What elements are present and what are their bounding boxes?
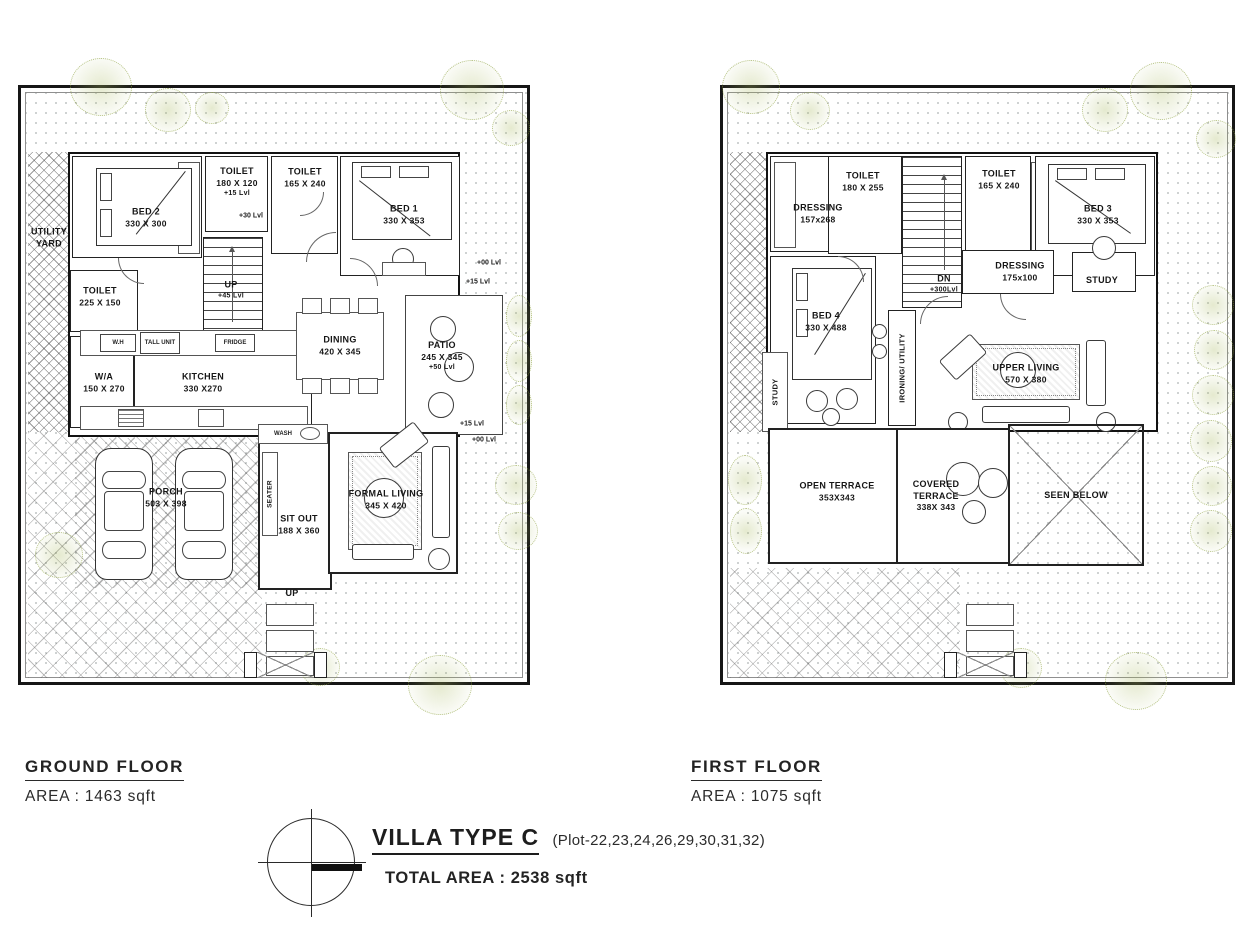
stairs-dn-label: DN +300Lvl [930, 274, 958, 295]
dining-chair [358, 378, 378, 394]
stepping-stone [266, 604, 314, 626]
car-icon [175, 448, 233, 580]
tree-icon [790, 92, 830, 130]
room-name: KITCHEN [182, 372, 224, 382]
plot-numbers: (Plot-22,23,24,26,29,30,31,32) [553, 832, 765, 849]
desk [382, 262, 426, 276]
wash-basin-icon [300, 427, 320, 440]
tree-icon [1082, 88, 1128, 132]
formal-living-label: FORMAL LIVING 345 X 420 [349, 489, 424, 512]
gate-post [944, 652, 957, 678]
room-name: TOILET [83, 286, 117, 296]
room-dims: 180 X 255 [842, 182, 883, 193]
ironing-utility-label: IRONING/ UTILITY [898, 333, 907, 402]
level-00-label: +00 Lvl [472, 437, 496, 444]
driveway-hatch [730, 568, 960, 678]
tree-icon [70, 58, 132, 116]
toilet-c-label: TOILET 225 X 150 [79, 286, 120, 309]
wash-label: WASH [274, 431, 292, 437]
room-dims: 330 X 353 [1077, 215, 1118, 226]
sofa [432, 446, 450, 538]
bench-seat [982, 406, 1070, 423]
room-name: OPEN TERRACE [799, 481, 874, 491]
room-name: TOILET [288, 167, 322, 177]
room-dims: 157x268 [793, 214, 842, 225]
dining-chair [330, 378, 350, 394]
room-dims: 165 X 240 [978, 180, 1019, 191]
room-name: UPPER LIVING [992, 363, 1059, 373]
fridge-label: FRIDGE [224, 340, 247, 347]
porch-label: PORCH 503 X 398 [145, 487, 186, 510]
level-15-label: +15 Lvl [466, 279, 490, 286]
car-windshield [102, 471, 146, 489]
stairs-arrow-head [941, 174, 947, 180]
tree-icon [1190, 510, 1232, 552]
tree-icon [492, 110, 530, 146]
tub-chair [836, 388, 858, 410]
tree-icon [1105, 652, 1167, 710]
pillow [100, 209, 112, 237]
room-dims: 150 X 270 [83, 383, 124, 394]
upper-living-label: UPPER LIVING 570 X 380 [992, 363, 1059, 386]
tree-icon [1196, 120, 1236, 158]
gate-swing [257, 652, 314, 678]
pillow [796, 273, 808, 301]
room-dims: 338X 343 [913, 502, 960, 513]
room-dims: 180 X 120 [216, 178, 257, 189]
terrace-chair [962, 500, 986, 524]
room-name: BED 1 [390, 204, 418, 214]
water-heater-box: W.H [100, 334, 136, 352]
patio-chair [428, 392, 454, 418]
gate-post [244, 652, 257, 678]
bed3-label: BED 3 330 X 353 [1077, 204, 1118, 227]
tall-unit-label: TALL UNIT [145, 340, 175, 347]
patio-chair [430, 316, 456, 342]
level-00-label: +00 Lvl [477, 260, 501, 267]
sofa [1086, 340, 1106, 406]
room-name: TOILET [220, 166, 254, 176]
toilet-b-label: TOILET 165 X 240 [284, 167, 325, 190]
open-terrace-label: OPEN TERRACE 353X343 [799, 481, 874, 504]
tree-icon [506, 385, 532, 425]
room-name: BED 4 [812, 311, 840, 321]
study-b-label: STUDY [771, 379, 780, 406]
terrace-chair [978, 468, 1008, 498]
room-name: UTILITY YARD [31, 226, 67, 248]
pillow [399, 166, 429, 178]
fridge-box: FRIDGE [215, 334, 255, 352]
pillow [100, 173, 112, 201]
tree-icon [495, 465, 537, 505]
room-dims: 420 X 345 [319, 346, 360, 357]
villa-title: VILLA TYPE C [372, 824, 539, 855]
level-15-label: +15 Lvl [460, 421, 484, 428]
gate-post [1014, 652, 1027, 678]
tree-icon [506, 295, 532, 337]
tree-icon [1192, 285, 1234, 325]
bed1-furniture [352, 162, 452, 240]
car-roof [184, 491, 224, 531]
tree-icon [440, 60, 504, 120]
stairs-arrow [944, 180, 945, 270]
patio-label: PATIO 245 X 345 +50 Lvl [421, 340, 462, 372]
room-dims: 503 X 398 [145, 498, 186, 509]
room-name: FORMAL LIVING [349, 489, 424, 499]
tree-icon [728, 455, 762, 505]
tall-unit-box: TALL UNIT [140, 332, 180, 354]
room-dims: 570 X 380 [992, 374, 1059, 385]
washer-icon [872, 324, 887, 339]
seater-label: SEATER [267, 480, 274, 508]
study-chair [1092, 236, 1116, 260]
toilet-e-label: TOILET 165 X 240 [978, 169, 1019, 192]
room-dims: 245 X 345 [421, 352, 462, 363]
room-dims: 330 X 488 [805, 322, 846, 333]
first-floor-area: AREA : 1075 sqft [691, 788, 822, 806]
title-block: VILLA TYPE C (Plot-22,23,24,26,29,30,31,… [372, 824, 765, 888]
pillow [361, 166, 391, 178]
bed4-label: BED 4 330 X 488 [805, 311, 846, 334]
bench-seat [352, 544, 414, 560]
level-30-label: +30 Lvl [239, 213, 263, 220]
first-floor-title: FIRST FLOOR [691, 757, 822, 781]
stairs-up-label: UP +45 Lvl [218, 280, 244, 301]
compass-bar [312, 864, 362, 871]
floor-plan-sheet: W.H TALL UNIT FRIDGE [0, 0, 1250, 935]
car-icon [95, 448, 153, 580]
dining-chair [358, 298, 378, 314]
tree-icon [408, 655, 472, 715]
room-name: TERRACE [913, 490, 960, 502]
room-dims: 330 X 353 [383, 215, 424, 226]
washer-icon [872, 344, 887, 359]
toilet-a-label: TOILET 180 X 120 +15 Lvl [216, 166, 257, 198]
wa-label: W/A 150 X 270 [83, 372, 124, 395]
pillow [1095, 168, 1125, 180]
toilet-d-label: TOILET 180 X 255 [842, 171, 883, 194]
stepping-stone [966, 604, 1014, 626]
pillow [1057, 168, 1087, 180]
tree-icon [145, 88, 191, 132]
first-floor-caption: FIRST FLOOR AREA : 1075 sqft [691, 757, 822, 806]
dressing-a-label: DRESSING 157x268 [793, 203, 842, 226]
room-level: +15 Lvl [216, 189, 257, 198]
utility-yard-label: UTILITY YARD [26, 226, 72, 249]
dn-level: +300Lvl [930, 285, 958, 294]
room-dims: 165 X 240 [284, 178, 325, 189]
room-dims: 353X343 [799, 492, 874, 503]
dining-label: DINING 420 X 345 [319, 335, 360, 358]
stepping-stone [966, 630, 1014, 652]
ground-floor-caption: GROUND FLOOR AREA : 1463 sqft [25, 757, 184, 806]
wh-label: W.H [112, 340, 123, 347]
room-name: PORCH [149, 487, 183, 497]
kitchen-sink [118, 409, 144, 427]
tree-icon [1130, 62, 1192, 120]
room-name: W/A [95, 372, 113, 382]
entry-up-label: UP [285, 588, 298, 600]
tree-icon [730, 508, 762, 554]
tree-icon [1192, 375, 1234, 415]
ground-floor-title: GROUND FLOOR [25, 757, 184, 781]
room-name: TOILET [846, 171, 880, 181]
ground-floor-area: AREA : 1463 sqft [25, 788, 184, 806]
kitchen-label: KITCHEN 330 X270 [182, 372, 224, 395]
room-name: BED 3 [1084, 204, 1112, 214]
up-text: UP [224, 280, 237, 290]
room-dims: 345 X 420 [349, 500, 424, 511]
car-windshield [182, 471, 226, 489]
room-name: DRESSING [793, 203, 842, 213]
dining-chair [302, 378, 322, 394]
room-dims: 175x100 [995, 272, 1044, 283]
seen-below-label: SEEN BELOW [1044, 490, 1108, 502]
room-name: COVERED [913, 479, 960, 491]
car-rear-window [182, 541, 226, 559]
gate-swing [957, 652, 1014, 678]
room-name: DINING [323, 335, 356, 345]
tree-icon [722, 60, 780, 114]
room-name: DRESSING [995, 261, 1044, 271]
stairs-arrow-head [229, 246, 235, 252]
gate-post [314, 652, 327, 678]
dressing-b-label: DRESSING 175x100 [995, 261, 1044, 284]
room-dims: 330 X 300 [125, 218, 166, 229]
room-dims: 188 X 360 [278, 525, 319, 536]
compass-horizontal-line [258, 862, 366, 863]
room-name: BED 2 [132, 207, 160, 217]
tree-icon [1190, 420, 1232, 462]
up-level: +45 Lvl [218, 291, 244, 300]
study-a-label: STUDY [1086, 275, 1118, 287]
tree-icon [506, 340, 532, 382]
room-level: +50 Lvl [421, 363, 462, 372]
car-roof [104, 491, 144, 531]
covered-terrace-label: COVERED TERRACE 338X 343 [913, 479, 960, 513]
tree-icon [1192, 466, 1232, 506]
tree-icon [1194, 330, 1234, 370]
dn-text: DN [937, 274, 951, 284]
room-dims: 225 X 150 [79, 297, 120, 308]
utility-yard-hatch [28, 152, 70, 432]
total-area: TOTAL AREA : 2538 sqft [385, 869, 765, 888]
stepping-stone [266, 630, 314, 652]
room-dims: 330 X270 [182, 383, 224, 394]
room-name: TOILET [982, 169, 1016, 179]
tub-chair [822, 408, 840, 426]
dining-chair [330, 298, 350, 314]
room-name: PATIO [428, 340, 456, 350]
room-name: SIT OUT [280, 514, 318, 524]
bed2-label: BED 2 330 X 300 [125, 207, 166, 230]
tub-chair [806, 390, 828, 412]
tree-icon [498, 512, 538, 550]
tree-icon [195, 92, 229, 124]
north-compass-icon [267, 818, 355, 906]
sit-out-label: SIT OUT 188 X 360 [278, 514, 319, 537]
bed1-label: BED 1 330 X 353 [383, 204, 424, 227]
car-rear-window [102, 541, 146, 559]
kitchen-stove [198, 409, 224, 427]
dining-chair [302, 298, 322, 314]
planter-pot [428, 548, 450, 570]
